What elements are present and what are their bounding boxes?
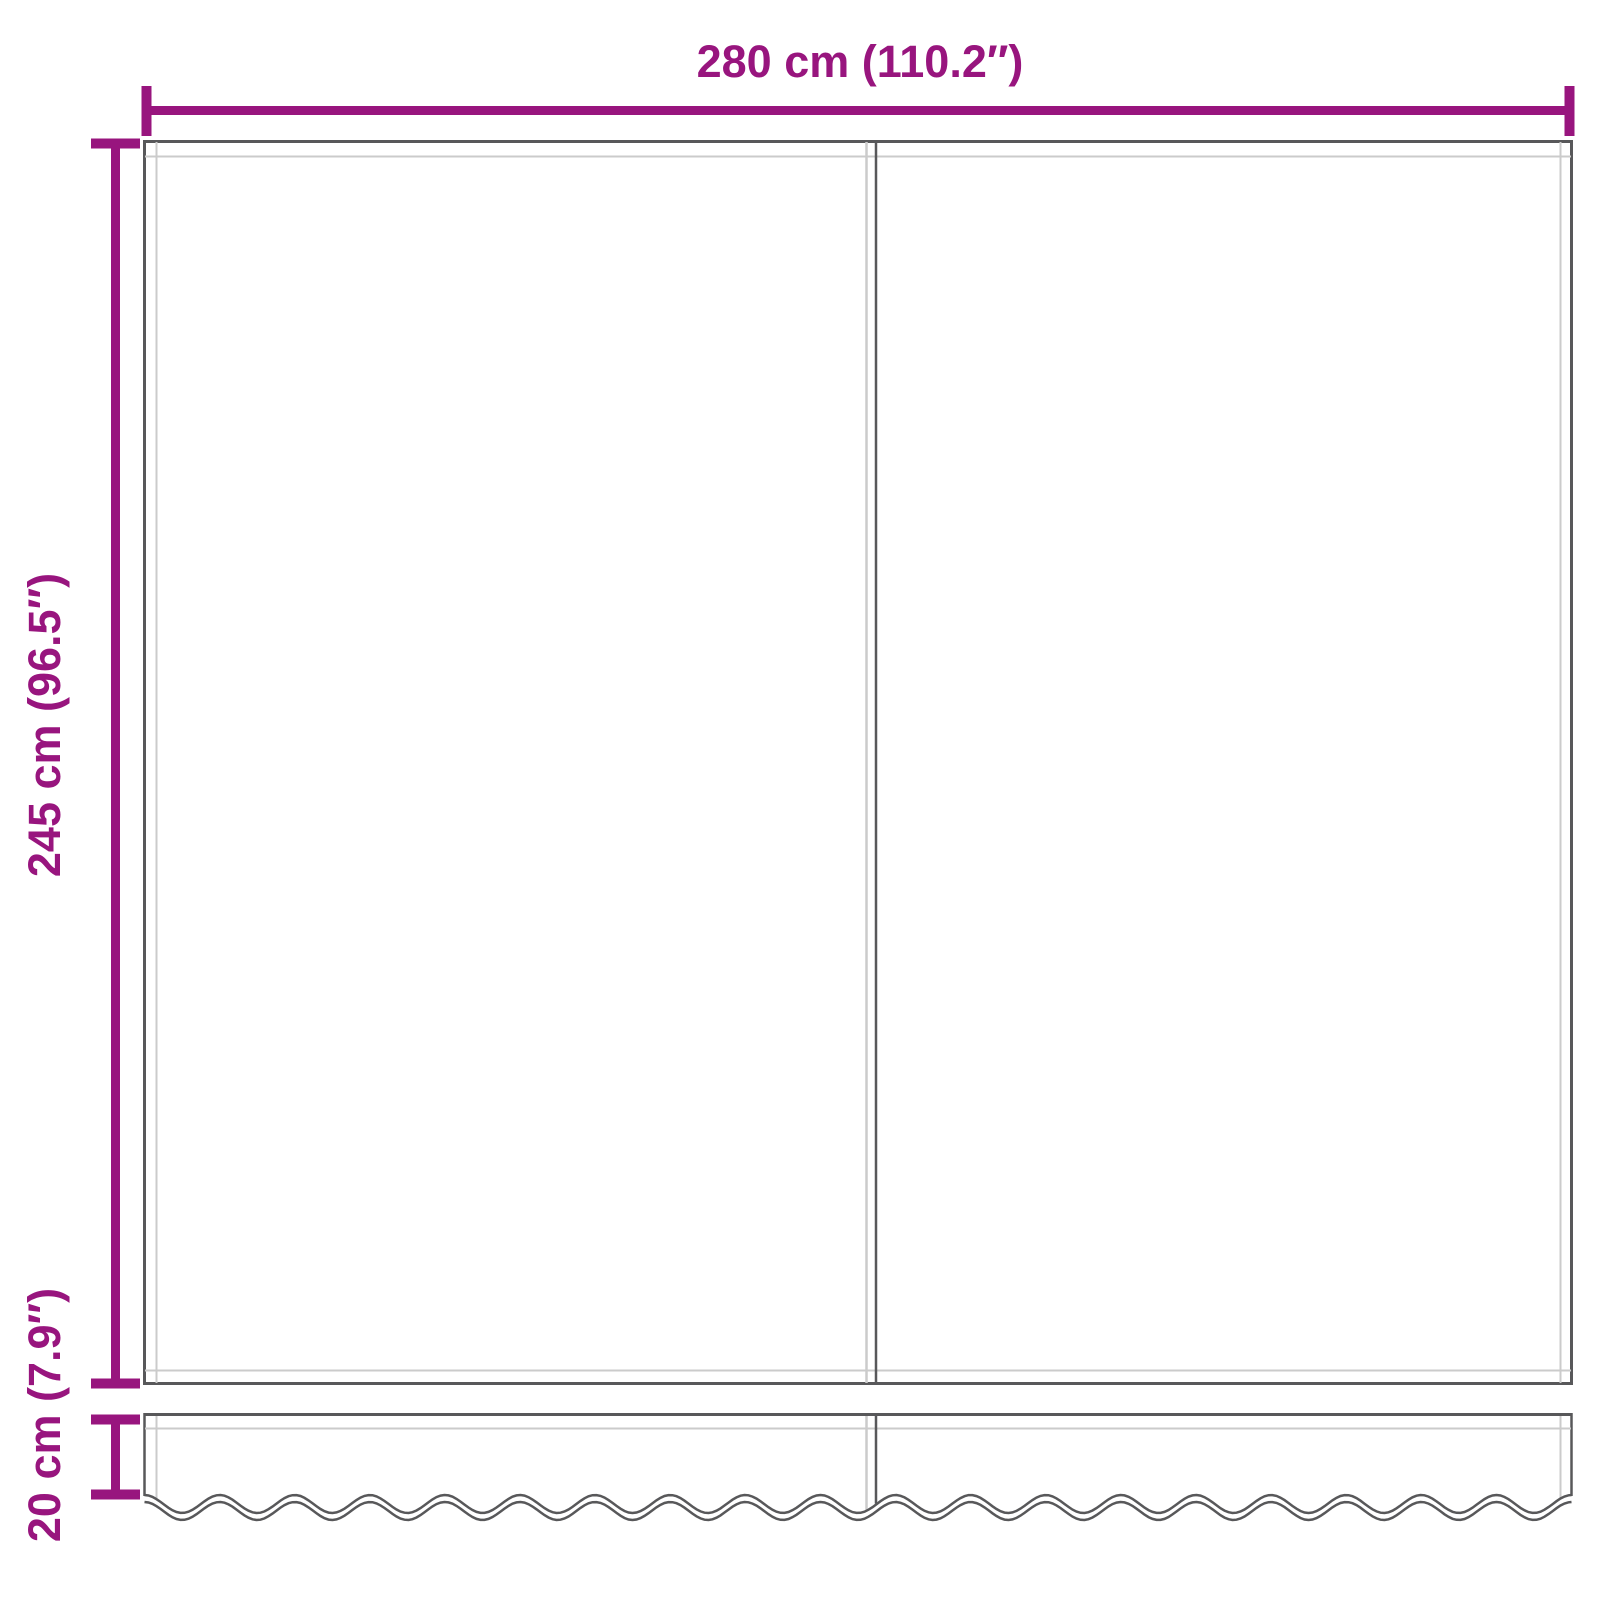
- valance-dimension: 20 cm (7.9″): [19, 1288, 140, 1542]
- fabric-panel: [145, 142, 1572, 1384]
- width-dimension: 280 cm (110.2″): [146, 36, 1570, 136]
- awning-fabric-diagram: 280 cm (110.2″) 245 cm (96.5″) 20 cm (7.…: [0, 0, 1600, 1600]
- valance-scalloped-edge-inner: [145, 1502, 1572, 1520]
- dimension-diagram: 280 cm (110.2″) 245 cm (96.5″) 20 cm (7.…: [0, 0, 1600, 1600]
- fabric-panel-outline: [145, 142, 1572, 1384]
- height-dimension: 245 cm (96.5″): [19, 144, 140, 1384]
- valance-dimension-label: 20 cm (7.9″): [19, 1288, 70, 1542]
- height-dimension-label: 245 cm (96.5″): [19, 573, 70, 877]
- width-dimension-label: 280 cm (110.2″): [697, 36, 1024, 87]
- valance-scalloped-edge-outer: [145, 1495, 1572, 1513]
- valance-panel: [145, 1413, 1572, 1520]
